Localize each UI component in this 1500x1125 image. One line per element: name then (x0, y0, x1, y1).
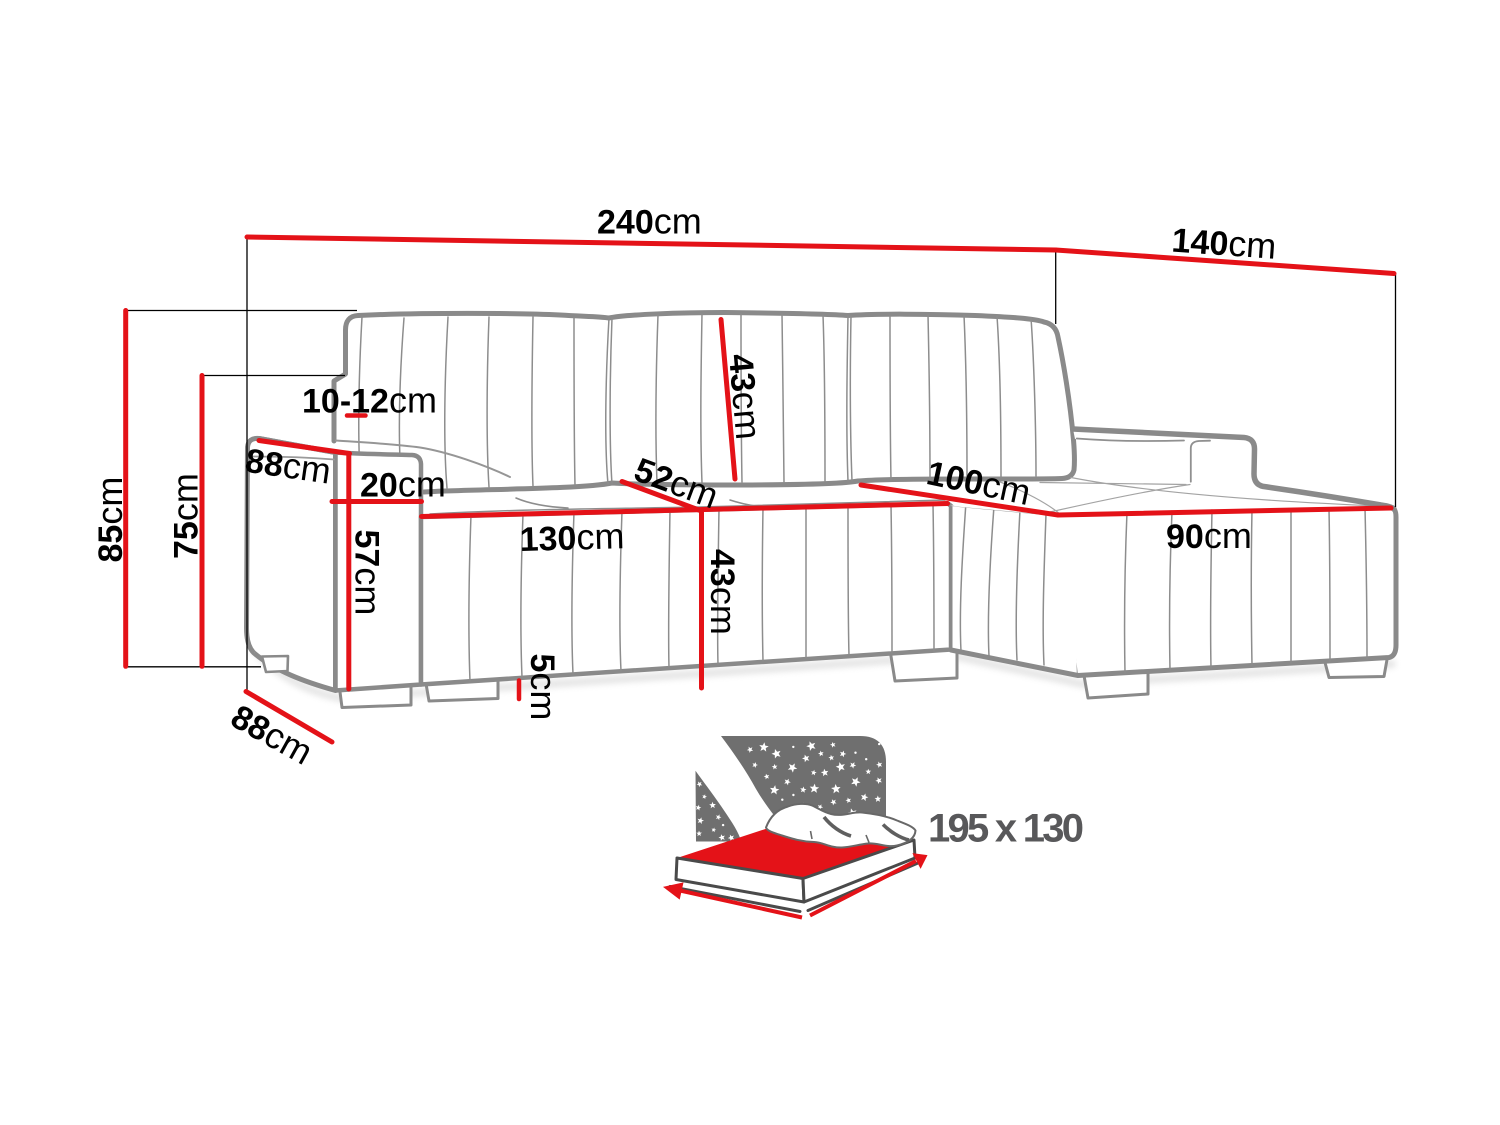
svg-text:195 x 130: 195 x 130 (928, 807, 1084, 851)
svg-text:10-12cm: 10-12cm (302, 380, 437, 421)
svg-text:130cm: 130cm (519, 515, 625, 559)
svg-text:85cm: 85cm (89, 477, 130, 563)
svg-text:90cm: 90cm (1166, 515, 1252, 556)
svg-text:57cm: 57cm (348, 530, 389, 616)
svg-text:43cm: 43cm (703, 549, 744, 635)
svg-text:75cm: 75cm (165, 473, 206, 559)
svg-text:240cm: 240cm (597, 201, 702, 242)
svg-text:5cm: 5cm (523, 654, 564, 721)
svg-text:20cm: 20cm (360, 464, 446, 505)
svg-text:140cm: 140cm (1170, 219, 1277, 267)
